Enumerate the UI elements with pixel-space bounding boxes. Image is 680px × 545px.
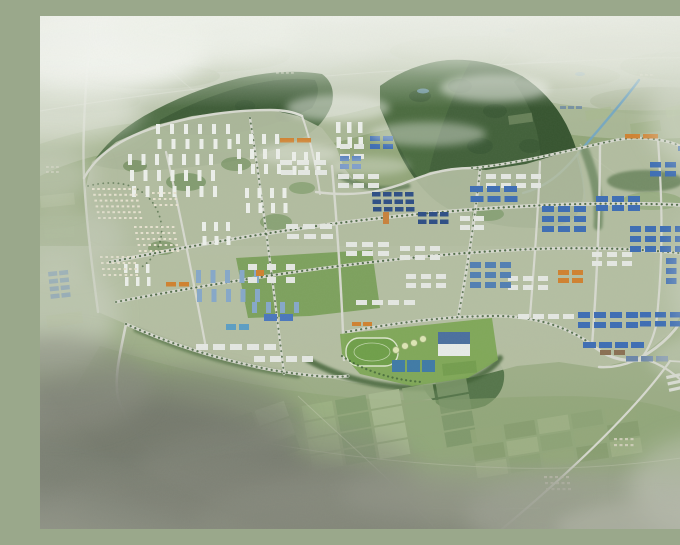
scene-root xyxy=(40,16,680,529)
aerial-render-canvas xyxy=(40,16,680,529)
aerial-masterplan-rendering xyxy=(40,16,680,529)
atmosphere xyxy=(40,16,680,529)
